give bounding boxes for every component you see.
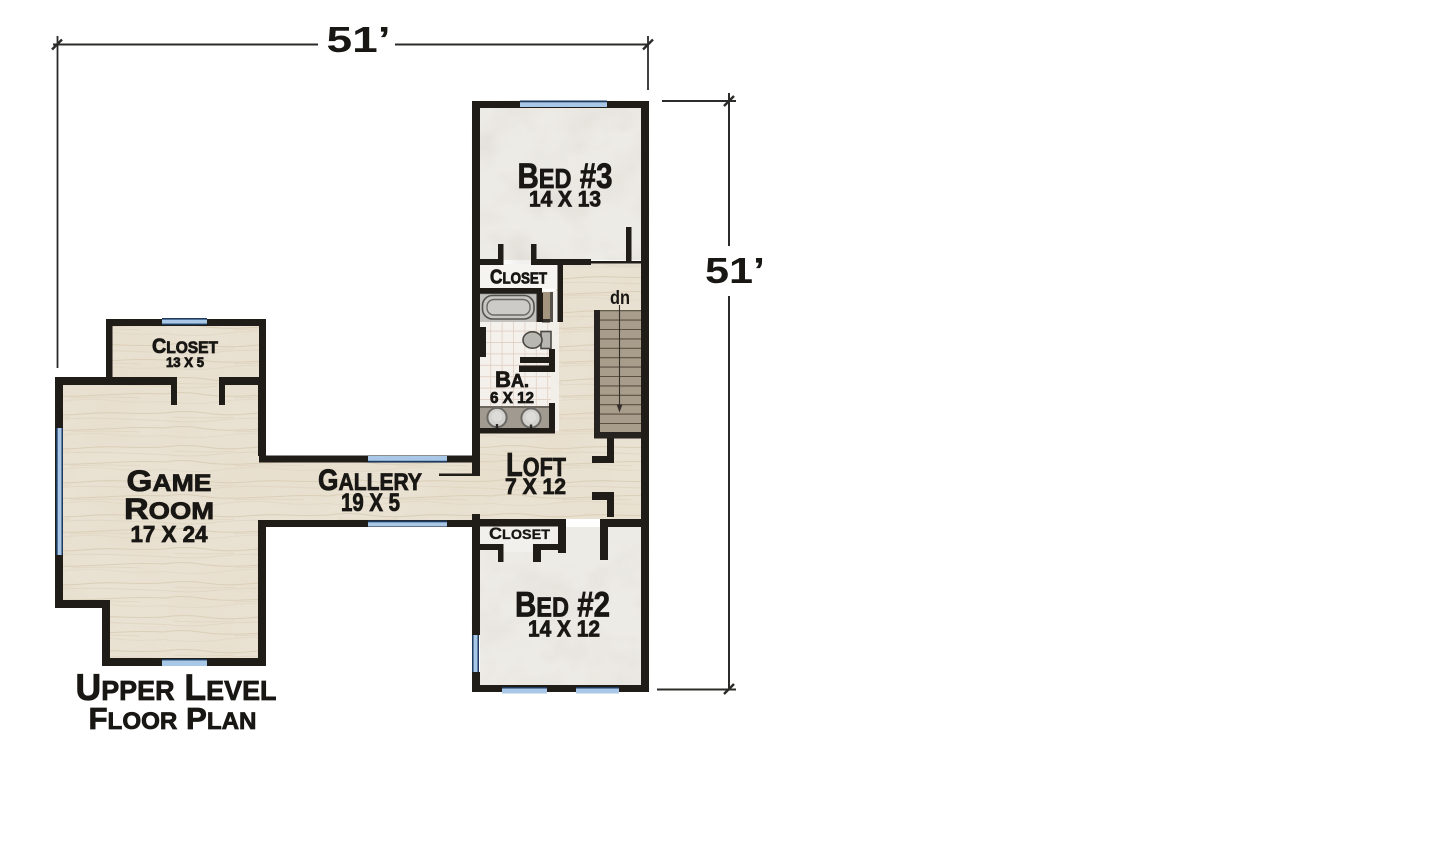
svg-text:BA.: BA. [495,367,529,392]
svg-text:14 X 13: 14 X 13 [529,187,601,212]
svg-text:7 X 12: 7 X 12 [505,474,566,499]
svg-text:14 X 12: 14 X 12 [528,616,600,642]
svg-text:51’: 51’ [327,19,391,60]
svg-text:17 X 24: 17 X 24 [131,521,208,547]
svg-text:51’: 51’ [705,250,765,291]
svg-text:CLOSET: CLOSET [490,267,547,289]
svg-text:19 X 5: 19 X 5 [341,489,400,517]
svg-text:6 X 12: 6 X 12 [490,390,534,407]
svg-text:CLOSET: CLOSET [489,524,551,543]
svg-text:13 X 5: 13 X 5 [166,355,204,370]
svg-text:dn: dn [610,288,630,309]
